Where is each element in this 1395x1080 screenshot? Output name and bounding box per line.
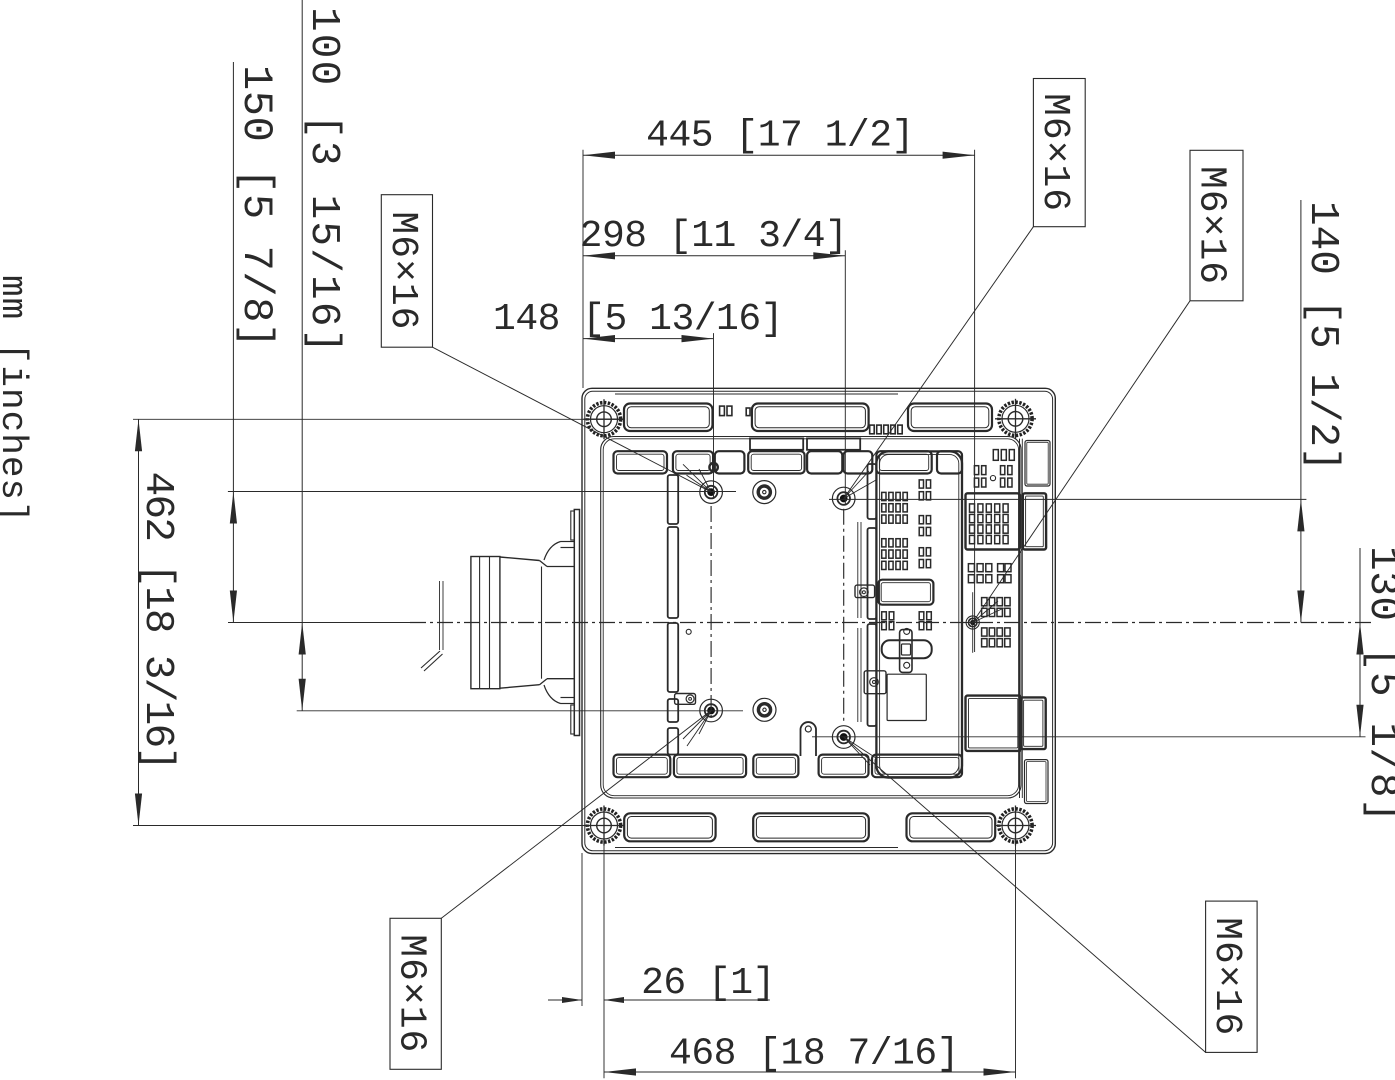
svg-text:mm [inches]: mm [inches] [0,275,33,524]
svg-text:M6×16: M6×16 [1190,166,1233,285]
svg-text:140 [5 1/2]: 140 [5 1/2] [1299,201,1345,472]
svg-text:130 [5 1/8]: 130 [5 1/8] [1359,546,1395,823]
svg-text:M6×16: M6×16 [390,934,433,1053]
svg-text:468 [18 7/16]: 468 [18 7/16] [669,1033,959,1076]
svg-text:148 [5 13/16]: 148 [5 13/16] [493,298,783,341]
svg-text:445 [17 1/2]: 445 [17 1/2] [646,114,914,157]
svg-text:462 [18 3/16]: 462 [18 3/16] [134,472,180,770]
svg-text:M6×16: M6×16 [1033,93,1076,212]
svg-text:298 [11 3/4]: 298 [11 3/4] [580,215,848,258]
svg-text:26 [1]: 26 [1] [641,962,775,1005]
svg-text:150 [5 7/8]: 150 [5 7/8] [232,65,280,349]
svg-text:100 [3 15/16]: 100 [3 15/16] [300,7,346,355]
svg-text:M6×16: M6×16 [1205,917,1248,1036]
svg-text:M6×16: M6×16 [381,211,424,330]
